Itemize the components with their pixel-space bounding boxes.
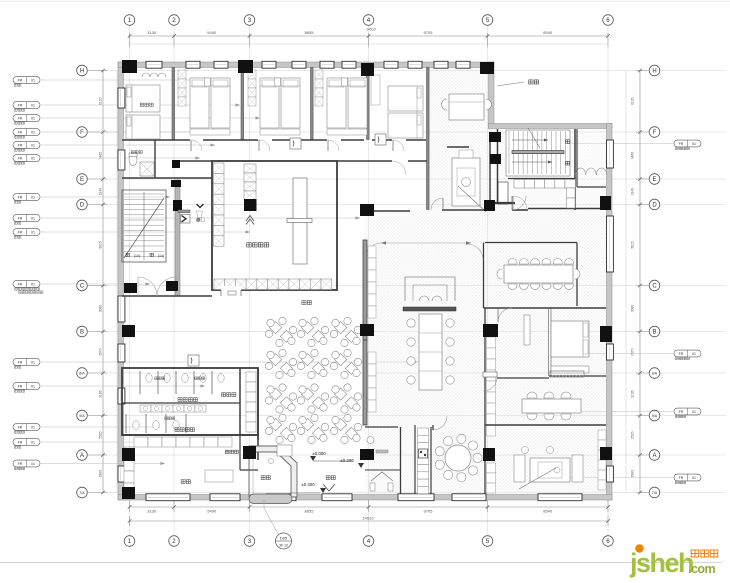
svg-text:FR: FR	[18, 361, 23, 365]
svg-text:01: 01	[31, 157, 35, 161]
svg-text:01: 01	[31, 104, 35, 108]
svg-text:2: 2	[172, 538, 176, 545]
svg-text:FR: FR	[18, 79, 23, 83]
svg-text:A: A	[652, 453, 656, 459]
svg-text:9705: 9705	[424, 30, 434, 35]
svg-text:F: F	[80, 130, 84, 136]
svg-text:8/A: 8/A	[652, 371, 658, 375]
svg-text:01: 01	[31, 361, 35, 365]
svg-text:FR: FR	[679, 476, 684, 480]
svg-text:FR: FR	[679, 142, 684, 146]
svg-text:FR: FR	[679, 410, 684, 414]
svg-text:01: 01	[31, 231, 35, 235]
svg-text:5615: 5615	[631, 241, 635, 249]
svg-text:6120: 6120	[631, 97, 635, 105]
svg-text:6: 6	[606, 538, 610, 545]
svg-text:E: E	[652, 177, 656, 183]
svg-text:FR: FR	[18, 196, 23, 200]
svg-text:3130: 3130	[147, 30, 157, 35]
svg-text:14510: 14510	[362, 516, 374, 521]
svg-text:.com: .com	[688, 562, 716, 576]
svg-text:±0.200: ±0.200	[340, 458, 354, 463]
svg-text:4: 4	[367, 538, 371, 545]
svg-text:2570: 2570	[99, 348, 103, 356]
svg-text:FR: FR	[18, 462, 23, 466]
svg-text:3: 3	[248, 17, 252, 24]
svg-text:C: C	[652, 284, 657, 290]
svg-text:9/A: 9/A	[652, 414, 658, 418]
svg-text:1: 1	[128, 538, 132, 545]
svg-text:±0.000: ±0.000	[312, 451, 326, 456]
svg-text:A: A	[80, 453, 84, 459]
svg-text:FR: FR	[18, 104, 23, 108]
svg-text:B: B	[652, 330, 656, 336]
svg-text:5490: 5490	[207, 30, 217, 35]
svg-text:D05: D05	[280, 536, 288, 541]
svg-text:2520: 2520	[631, 431, 635, 439]
svg-text:D: D	[652, 203, 657, 209]
svg-text:2: 2	[172, 17, 176, 24]
svg-text:1940: 1940	[99, 188, 103, 196]
svg-text:01: 01	[31, 196, 35, 200]
svg-text:01: 01	[692, 352, 696, 356]
svg-text:01: 01	[31, 79, 35, 83]
svg-text:7/A: 7/A	[652, 491, 658, 495]
svg-text:3: 3	[248, 538, 252, 545]
svg-text:F: F	[653, 130, 657, 136]
svg-text:1940: 1940	[631, 188, 635, 196]
svg-text:E: E	[80, 177, 84, 183]
svg-text:8540: 8540	[543, 30, 553, 35]
svg-text:FR: FR	[18, 283, 23, 287]
svg-text:2980: 2980	[631, 470, 635, 478]
svg-text:FR: FR	[18, 385, 23, 389]
svg-text:3460: 3460	[631, 152, 635, 160]
svg-text:2520: 2520	[99, 431, 103, 439]
svg-text:1: 1	[128, 17, 132, 24]
svg-text:01: 01	[31, 217, 35, 221]
svg-text:3080: 3080	[631, 305, 635, 313]
svg-text:D: D	[80, 203, 85, 209]
svg-text:2980: 2980	[99, 470, 103, 478]
svg-text:FR: FR	[18, 426, 23, 430]
svg-text:H: H	[80, 69, 84, 75]
svg-text:01: 01	[692, 476, 696, 480]
svg-text:14510: 14510	[366, 28, 376, 32]
svg-text:7/A: 7/A	[79, 491, 85, 495]
svg-text:01: 01	[31, 117, 35, 121]
svg-text:01: 01	[692, 410, 696, 414]
svg-text:C: C	[80, 284, 85, 290]
svg-text:FR: FR	[18, 217, 23, 221]
svg-text:01: 01	[692, 142, 696, 146]
svg-text:9/A: 9/A	[79, 414, 85, 418]
svg-text:H: H	[652, 69, 656, 75]
svg-text:01: 01	[31, 426, 35, 430]
svg-text:9705: 9705	[424, 509, 434, 514]
svg-text:01: 01	[31, 385, 35, 389]
svg-text:6120: 6120	[99, 97, 103, 105]
svg-text:8655: 8655	[305, 509, 315, 514]
svg-text:5: 5	[486, 538, 490, 545]
svg-text:5: 5	[486, 17, 490, 24]
svg-text:(14): (14)	[158, 254, 164, 258]
svg-text:8655: 8655	[305, 30, 315, 35]
svg-text:3130: 3130	[147, 509, 157, 514]
svg-text:01: 01	[31, 144, 35, 148]
svg-text:01: 01	[31, 462, 35, 466]
svg-text:B: B	[80, 330, 84, 336]
svg-text:8/A: 8/A	[79, 371, 85, 375]
svg-text:2570: 2570	[631, 348, 635, 356]
svg-text:FR: FR	[18, 131, 23, 135]
svg-text:3195: 3195	[99, 390, 103, 398]
svg-text:01: 01	[31, 441, 35, 445]
svg-text:01: 01	[31, 131, 35, 135]
svg-text:5490: 5490	[207, 509, 217, 514]
svg-text:FR: FR	[679, 352, 684, 356]
svg-text:3F-10: 3F-10	[279, 544, 288, 548]
svg-text:4: 4	[367, 17, 371, 24]
svg-text:FR: FR	[18, 144, 23, 148]
svg-text:6: 6	[606, 17, 610, 24]
svg-text:FR: FR	[18, 157, 23, 161]
svg-text:(14): (14)	[134, 254, 140, 258]
svg-text:3195: 3195	[631, 390, 635, 398]
svg-text:±0.400: ±0.400	[301, 482, 315, 487]
svg-text:01: 01	[31, 283, 35, 287]
svg-text:8540: 8540	[543, 509, 553, 514]
svg-text:FR: FR	[18, 117, 23, 121]
svg-text:FR: FR	[18, 441, 23, 445]
svg-text:5615: 5615	[99, 241, 103, 249]
svg-text:3080: 3080	[99, 305, 103, 313]
svg-text:FR: FR	[18, 231, 23, 235]
